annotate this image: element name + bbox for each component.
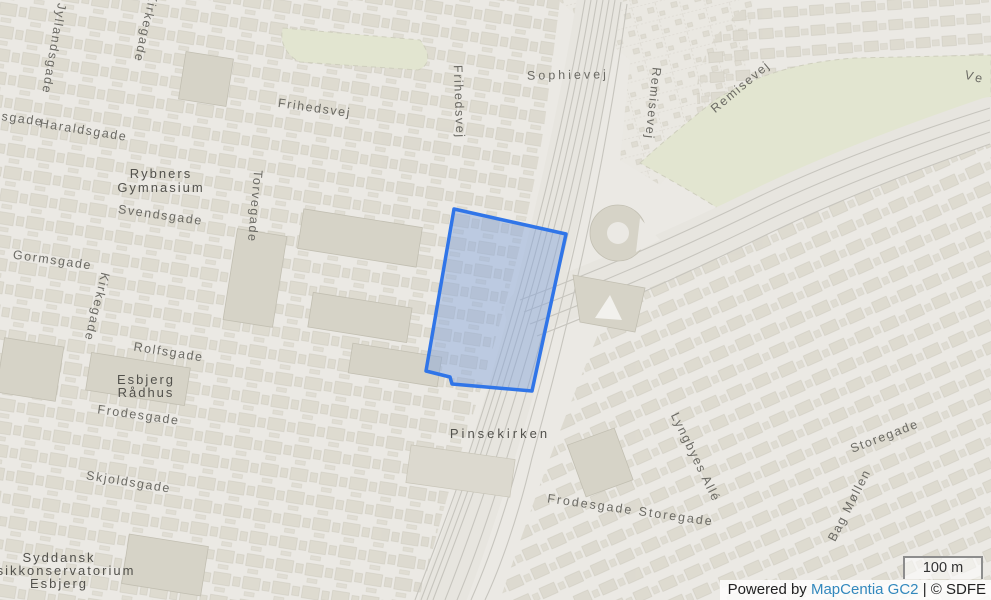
map-label-gymnasium: Gymnasium [117, 180, 204, 195]
attribution-prefix: Powered by [728, 581, 811, 598]
attribution-link[interactable]: MapCentia GC2 [811, 581, 919, 598]
scale-bar-label: 100 m [923, 560, 963, 576]
map-label-r-dhus: Rådhus [118, 385, 175, 400]
building [179, 52, 234, 107]
building-ring-court [607, 222, 629, 244]
attribution-suffix: | © SDFE [919, 581, 986, 598]
map-label-frihedsvej: Frihedsvej [451, 65, 468, 139]
attribution-bar: Powered by MapCentia GC2 | © SDFE [720, 580, 991, 600]
map-label-sophievej: Sophievej [527, 67, 609, 82]
scale-bar: 100 m [903, 556, 983, 579]
map-label-rybners: Rybners [130, 166, 192, 181]
building [0, 338, 64, 402]
map-label-esbjerg: Esbjerg [30, 576, 88, 591]
map-viewport[interactable]: JyllandsgadeKirkegadesgadeHaraldsgadeFri… [0, 0, 991, 600]
map-label-pinsekirken: Pinsekirken [450, 426, 550, 441]
map-canvas[interactable]: JyllandsgadeKirkegadesgadeHaraldsgadeFri… [0, 0, 991, 600]
